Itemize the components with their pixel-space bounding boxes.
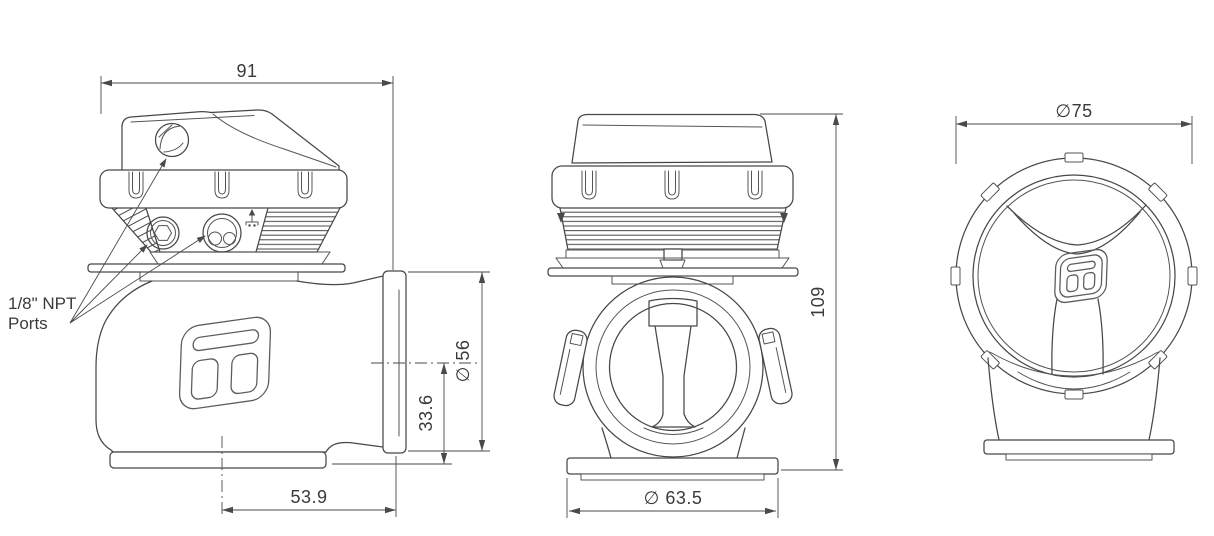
- side-outlet-flange: [383, 271, 406, 453]
- dim-inlet-flange-diameter: ∅ 63.5: [567, 478, 778, 518]
- npt-label-line2: Ports: [8, 314, 48, 333]
- cast-mark-icon: [246, 209, 258, 227]
- front-locking-collar: [552, 166, 793, 208]
- side-locking-collar: [100, 170, 347, 208]
- dim-outlet-diameter-value: ∅ 56: [453, 340, 473, 383]
- wastegate-drawing: 91 1/8" NPT Ports ∅ 56 33.6: [0, 0, 1214, 536]
- end-view: ∅75: [951, 101, 1197, 460]
- cap-spokes: [990, 205, 1158, 389]
- cap-brand-badge: [1054, 248, 1107, 304]
- front-fins: [560, 208, 786, 250]
- end-outlet-step: [1006, 454, 1152, 460]
- npt-label-line1: 1/8" NPT: [8, 294, 76, 313]
- dim-inlet-flange-diameter-value: ∅ 63.5: [644, 488, 703, 508]
- dim-cap-diameter-value: ∅75: [1055, 101, 1092, 121]
- end-outlet-flange: [984, 440, 1174, 454]
- front-inlet-flange: [567, 458, 778, 474]
- technical-drawing-page: 91 1/8" NPT Ports ∅ 56 33.6: [0, 0, 1214, 536]
- brand-logo: [179, 315, 271, 411]
- front-diaphragm-housing: [548, 208, 798, 284]
- dim-top-width-value: 91: [236, 61, 257, 81]
- front-actuator-cap: [572, 115, 772, 164]
- side-inlet-flange: [110, 452, 326, 468]
- side-actuator-cap: [122, 110, 339, 170]
- dim-overall-height-value: 109: [808, 286, 828, 318]
- front-inlet-step: [581, 474, 764, 480]
- dim-outlet-center-height-value: 33.6: [416, 394, 436, 431]
- leader-dual-port: [70, 236, 205, 323]
- dual-hole-port: [203, 214, 241, 252]
- side-valve-body: [96, 271, 479, 516]
- front-flange-plate: [548, 268, 798, 276]
- side-castellated-ring: [140, 272, 298, 281]
- front-valve-body: [552, 277, 793, 480]
- side-view: 91 1/8" NPT Ports ∅ 56 33.6: [8, 61, 490, 517]
- side-fins-right: [256, 208, 340, 252]
- front-view: 109 ∅ 63.5: [548, 114, 843, 518]
- dim-outlet-face-offset-value: 53.9: [290, 487, 327, 507]
- valve-stem: [644, 299, 703, 435]
- end-outlet-neck: [984, 358, 1174, 460]
